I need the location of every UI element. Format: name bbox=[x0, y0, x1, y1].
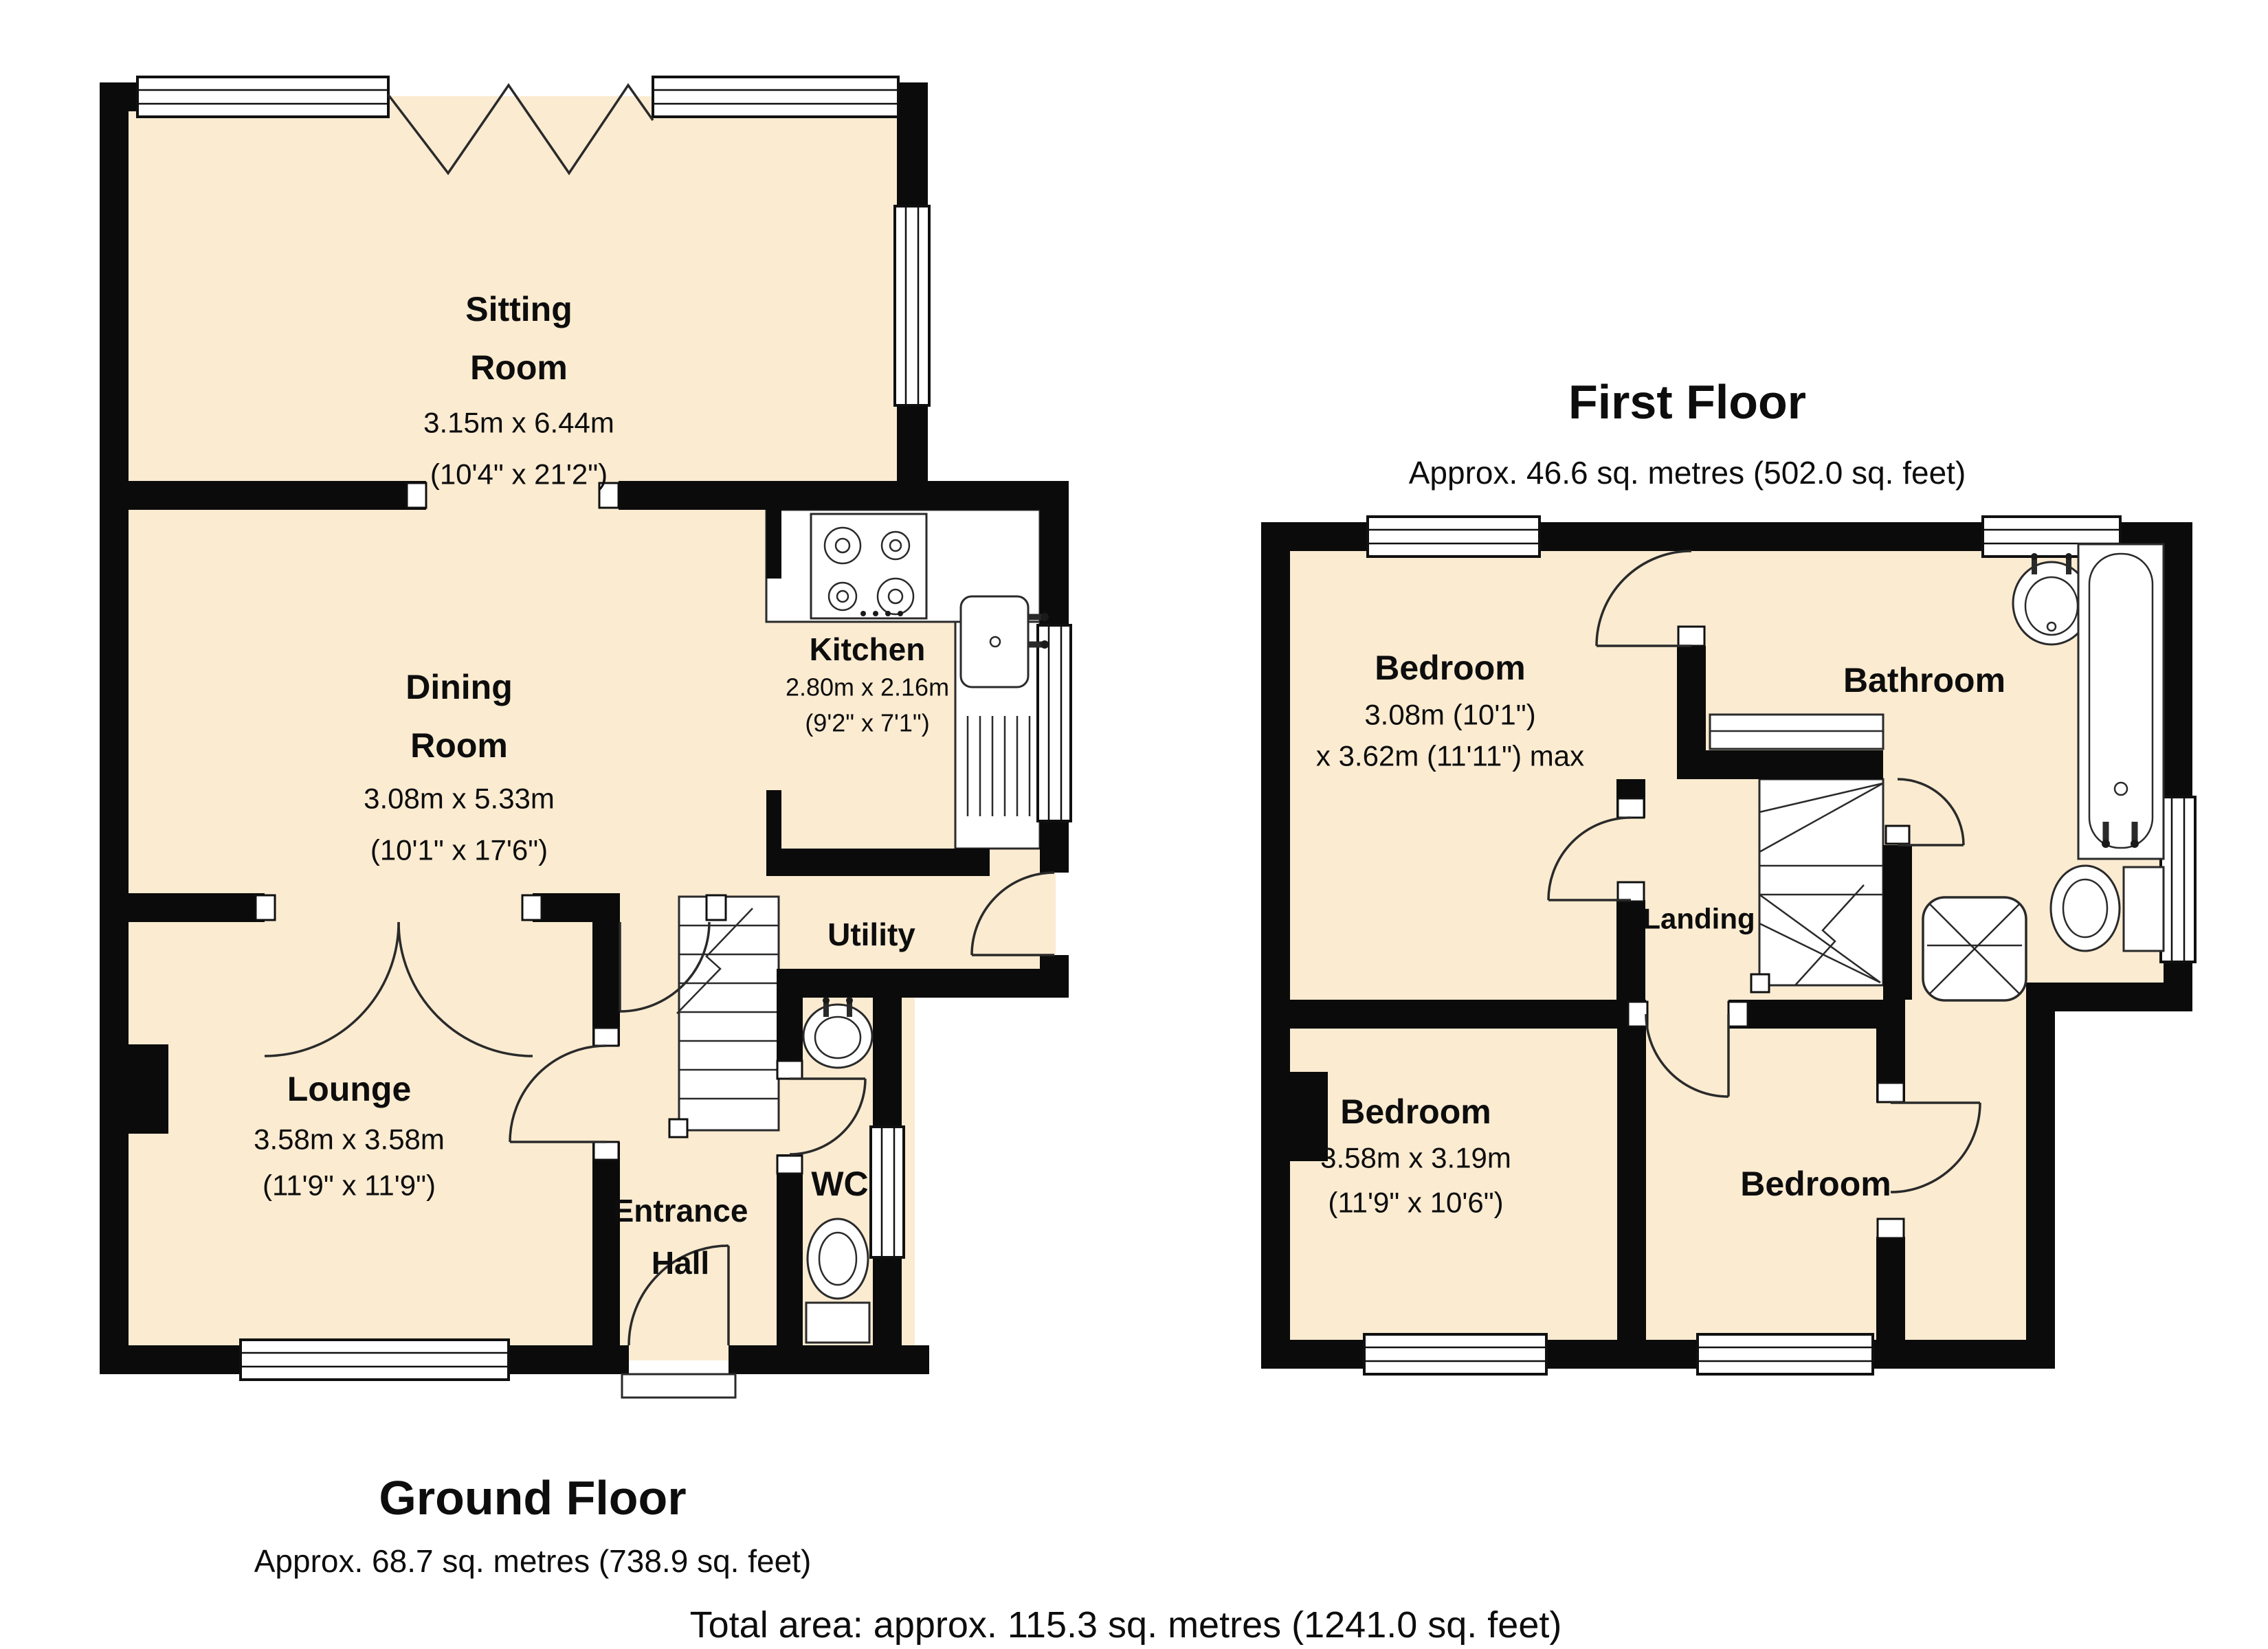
door-jamb bbox=[522, 895, 542, 920]
window-bedroom2-bottom bbox=[1364, 1334, 1546, 1374]
entrance-hall-label: Entrance bbox=[613, 1193, 748, 1229]
first-floor-plan: Bedroom 3.08m (10'1") x 3.62m (11'11") m… bbox=[1261, 375, 2195, 1374]
wall-segment bbox=[1883, 845, 1912, 1000]
wall-segment bbox=[873, 1257, 902, 1345]
door-jamb bbox=[1886, 826, 1909, 844]
wall-segment bbox=[1728, 1000, 1876, 1029]
sitting-room-imperial: (10'4" x 21'2") bbox=[430, 458, 608, 491]
front-door-step bbox=[622, 1374, 735, 1398]
stair-newel-post bbox=[669, 1119, 687, 1137]
door-jamb bbox=[256, 895, 275, 920]
window-lounge-bottom bbox=[241, 1340, 509, 1380]
stairs-outline bbox=[679, 897, 779, 1130]
door-jamb bbox=[1618, 882, 1644, 901]
bath-icon bbox=[2078, 544, 2164, 859]
total-area-label: Total area: approx. 115.3 sq. metres (12… bbox=[690, 1604, 1562, 1646]
utility-label: Utility bbox=[827, 917, 915, 952]
sitting-room-label2: Room bbox=[470, 348, 568, 387]
wall-segment bbox=[1617, 1029, 1646, 1340]
sitting-room-metric: 3.15m x 6.44m bbox=[423, 407, 614, 439]
gf-staircase bbox=[669, 897, 779, 1137]
door-jamb bbox=[1678, 627, 1704, 646]
wall-segment bbox=[1546, 1340, 1698, 1369]
door-jamb bbox=[1878, 1219, 1904, 1238]
wall-segment bbox=[766, 510, 781, 579]
ground-floor-title: Ground Floor bbox=[379, 1471, 686, 1525]
wall-segment bbox=[1677, 750, 1883, 779]
kitchen-imperial: (9'2" x 7'1") bbox=[805, 709, 929, 737]
shower-icon bbox=[1923, 897, 2026, 1000]
door-jamb bbox=[594, 1142, 619, 1160]
chimney-breast bbox=[129, 1044, 168, 1134]
door-jamb bbox=[1878, 1083, 1904, 1102]
wall-segment bbox=[873, 969, 902, 1127]
wall-segment bbox=[1876, 1237, 1905, 1340]
window-bedroom3-bottom bbox=[1698, 1334, 1873, 1374]
bathroom-label: Bathroom bbox=[1843, 661, 2005, 699]
landing-label: Landing bbox=[1643, 903, 1755, 935]
door-jamb bbox=[1618, 798, 1644, 818]
wall-segment bbox=[592, 1142, 620, 1345]
lounge-label: Lounge bbox=[287, 1070, 412, 1108]
lounge-imperial: (11'9" x 11'9") bbox=[263, 1169, 436, 1202]
hob-icon bbox=[811, 514, 926, 618]
bedroom2-label: Bedroom bbox=[1340, 1092, 1491, 1131]
wall-segment bbox=[766, 849, 990, 876]
window-bedroom1-top bbox=[1368, 517, 1539, 557]
kitchen-label: Kitchen bbox=[810, 631, 926, 667]
ff-staircase bbox=[1751, 779, 1883, 992]
dining-room-metric: 3.08m x 5.33m bbox=[364, 783, 555, 815]
wall-segment bbox=[1261, 1000, 1646, 1029]
wc-label: WC bbox=[811, 1165, 868, 1203]
bedroom1-imperial: x 3.62m (11'11") max bbox=[1316, 740, 1584, 772]
bedroom1-label: Bedroom bbox=[1375, 649, 1525, 687]
wall-segment bbox=[619, 481, 897, 510]
door-jamb bbox=[707, 895, 726, 920]
floorplan-page: Sitting Room 3.15m x 6.44m (10'4" x 21'2… bbox=[0, 0, 2268, 1649]
window-bathroom-right bbox=[2161, 797, 2195, 962]
door-jamb bbox=[1628, 1002, 1647, 1027]
lounge-metric: 3.58m x 3.58m bbox=[254, 1123, 445, 1156]
window-sitting-right bbox=[895, 206, 929, 405]
wall-segment bbox=[1539, 522, 1983, 551]
wall-segment bbox=[1261, 1340, 1364, 1369]
floorplan-drawing: Sitting Room 3.15m x 6.44m (10'4" x 21'2… bbox=[0, 0, 2268, 1649]
wall-segment bbox=[1040, 821, 1069, 873]
entrance-hall-label2: Hall bbox=[652, 1245, 709, 1281]
bedroom2-metric: 3.58m x 3.19m bbox=[1320, 1142, 1511, 1174]
wall-segment bbox=[1261, 522, 1290, 1369]
wall-segment bbox=[897, 82, 928, 206]
wc-toilet-icon bbox=[806, 1219, 869, 1343]
wall-segment bbox=[2164, 522, 2192, 797]
dining-room-label2: Room bbox=[410, 726, 508, 765]
wall-segment bbox=[1040, 481, 1069, 625]
ff-cupboard bbox=[1710, 715, 1883, 749]
bedroom2-imperial: (11'9" x 10'6") bbox=[1328, 1187, 1503, 1219]
door-jamb bbox=[1728, 1002, 1748, 1027]
first-floor-area: Approx. 46.6 sq. metres (502.0 sq. feet) bbox=[1409, 455, 1966, 491]
sitting-room-label: Sitting bbox=[465, 290, 572, 328]
wall-segment bbox=[533, 893, 620, 922]
window-sitting-top-right bbox=[653, 77, 898, 117]
stair-newel-post bbox=[1751, 974, 1769, 992]
first-floor-title: First Floor bbox=[1568, 375, 1806, 429]
wall-segment bbox=[129, 893, 265, 922]
dining-room-imperial: (10'1" x 17'6") bbox=[370, 834, 548, 866]
wall-segment bbox=[2026, 1011, 2055, 1369]
ground-floor-area: Approx. 68.7 sq. metres (738.9 sq. feet) bbox=[254, 1543, 812, 1579]
bedroom1-metric: 3.08m (10'1") bbox=[1364, 699, 1535, 731]
wall-segment bbox=[2026, 983, 2192, 1011]
bathroom-toilet-icon bbox=[2051, 866, 2164, 951]
door-jamb bbox=[777, 1156, 802, 1174]
wall-segment bbox=[777, 1154, 803, 1345]
window-wc-right bbox=[871, 1127, 904, 1257]
bedroom3-label: Bedroom bbox=[1740, 1165, 1891, 1203]
window-sitting-top-left bbox=[137, 77, 388, 117]
wall-segment bbox=[729, 1345, 929, 1374]
window-kitchen-right bbox=[1038, 625, 1071, 821]
wall-segment bbox=[100, 82, 129, 1374]
wall-segment bbox=[766, 790, 781, 849]
wall-segment bbox=[777, 969, 1069, 998]
door-jamb bbox=[594, 1028, 619, 1046]
door-jamb bbox=[407, 483, 426, 508]
door-jamb bbox=[777, 1061, 802, 1079]
wall-segment bbox=[129, 481, 426, 510]
dining-room-label: Dining bbox=[405, 668, 513, 706]
wall-segment bbox=[1616, 900, 1645, 1000]
ground-floor-plan: Sitting Room 3.15m x 6.44m (10'4" x 21'2… bbox=[100, 77, 1071, 1579]
kitchen-metric: 2.80m x 2.16m bbox=[786, 673, 949, 702]
